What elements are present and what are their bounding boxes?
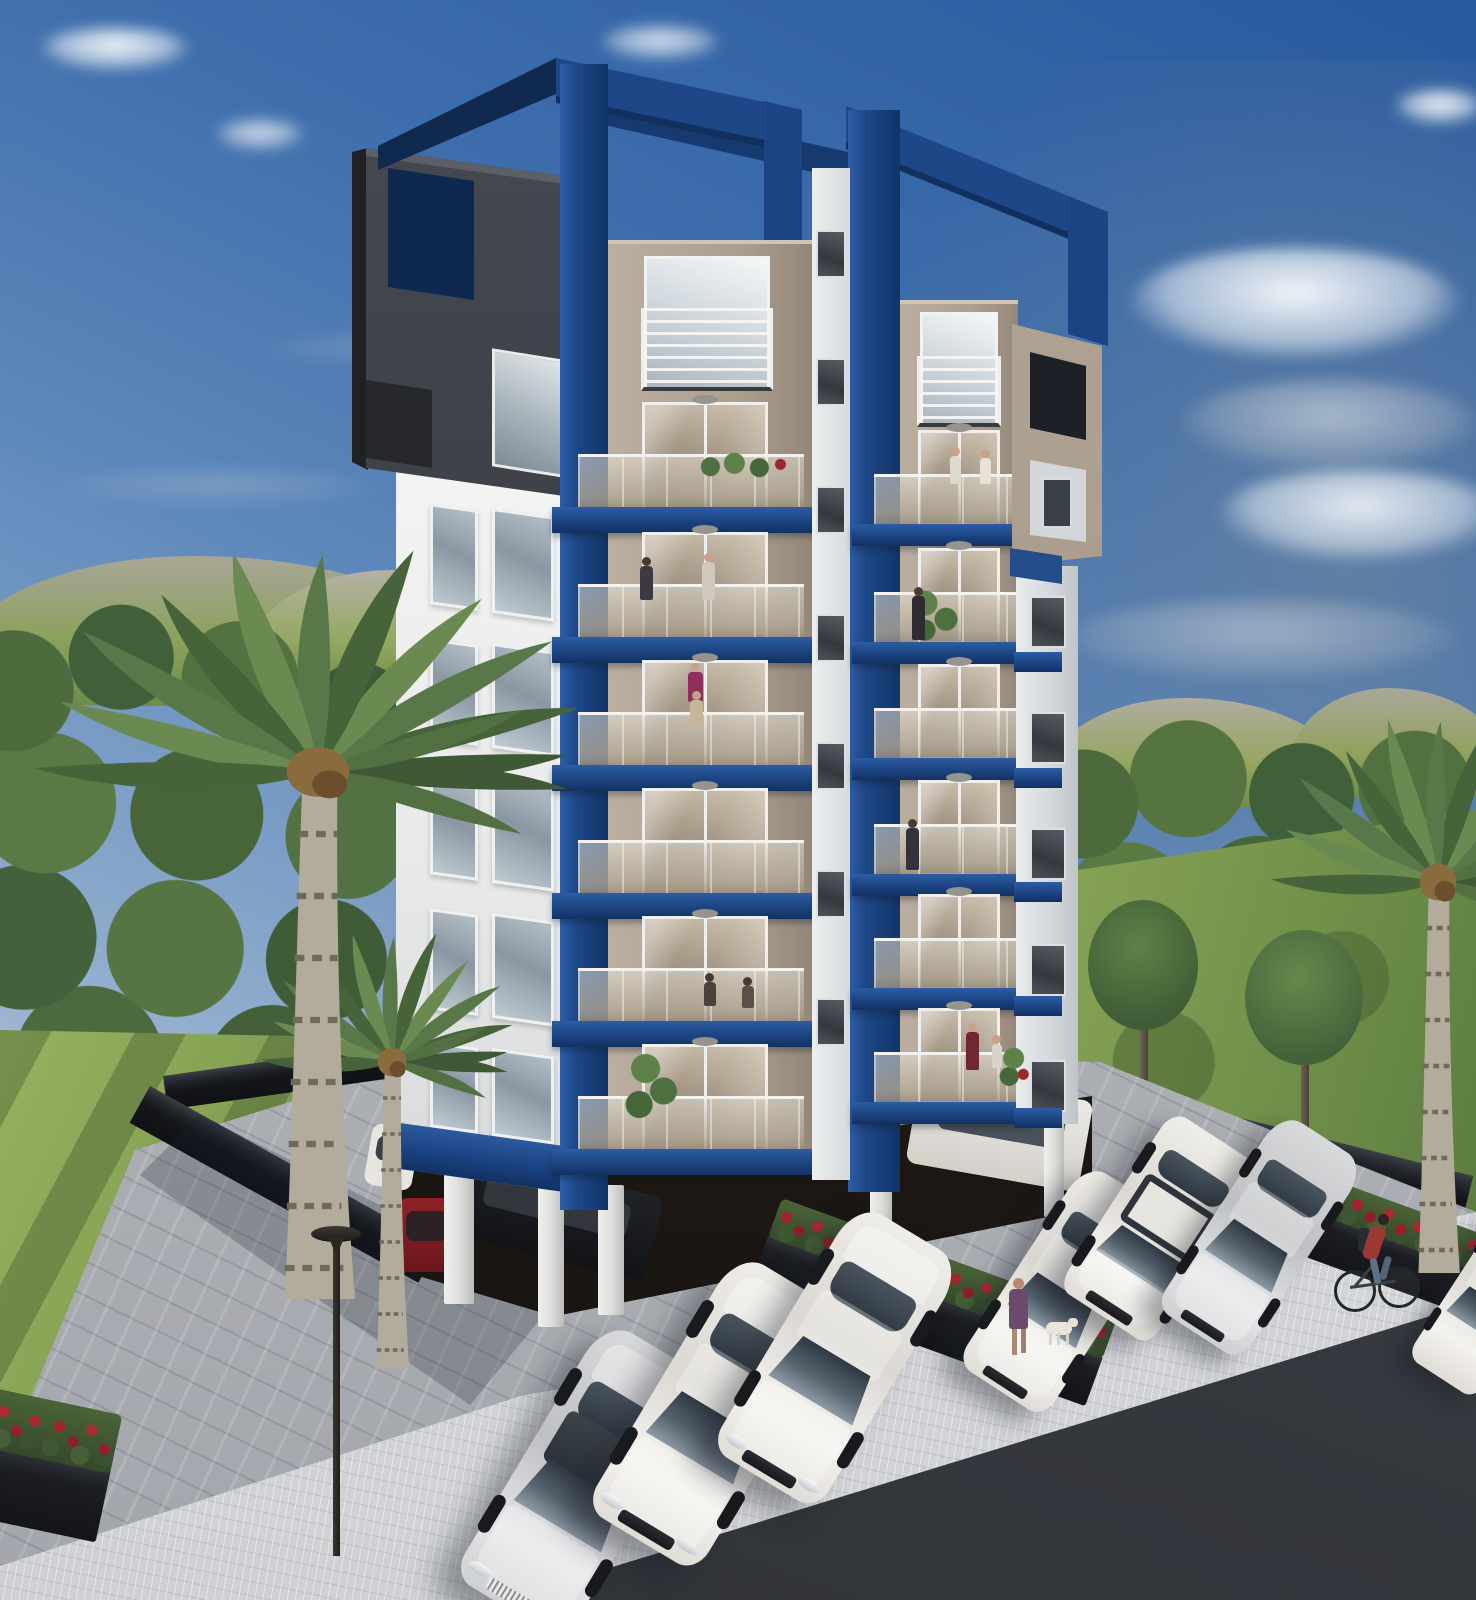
woman-walking-dog <box>1002 1278 1036 1364</box>
lamp-pole <box>333 1244 340 1556</box>
white-dog <box>1040 1318 1080 1348</box>
scene-architectural-render <box>0 0 1476 1600</box>
person-leg <box>1021 1329 1026 1353</box>
dog-leg <box>1066 1333 1069 1345</box>
dog-head <box>1068 1318 1078 1327</box>
person-leg <box>1012 1329 1017 1355</box>
palm-large-left <box>34 547 585 1299</box>
palm-trees <box>0 0 1476 1600</box>
dog-leg <box>1057 1333 1060 1345</box>
cyclist <box>1332 1208 1422 1312</box>
cyclist-head <box>1378 1214 1389 1225</box>
person-head <box>1013 1278 1024 1289</box>
person-dress-purple <box>1009 1289 1028 1329</box>
palm-right-edge <box>1270 715 1476 1273</box>
dog-leg <box>1049 1333 1052 1345</box>
bicycle-wheel <box>1334 1270 1376 1312</box>
